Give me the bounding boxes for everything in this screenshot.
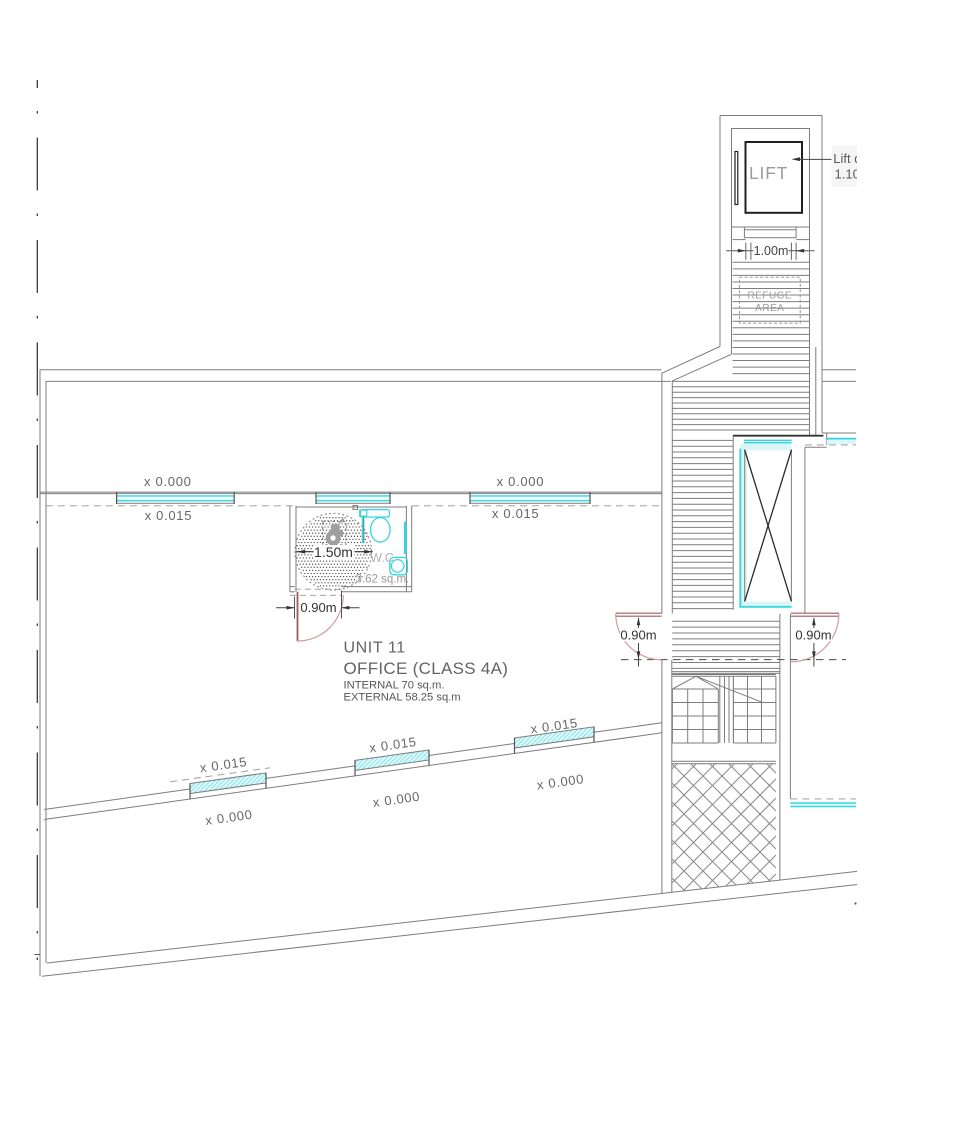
- svg-text:x 0.015: x 0.015: [492, 506, 540, 521]
- svg-text:0.90m: 0.90m: [300, 600, 336, 615]
- svg-text:1.50m: 1.50m: [314, 544, 353, 560]
- svg-text:x 0.015: x 0.015: [145, 508, 193, 523]
- svg-text:1.00m: 1.00m: [754, 244, 789, 258]
- svg-text:EXTERNAL 58.25 sq.m: EXTERNAL 58.25 sq.m: [344, 692, 461, 704]
- svg-text:AREA: AREA: [755, 303, 784, 314]
- svg-text:0.90m: 0.90m: [620, 627, 656, 642]
- svg-text:x 0.000: x 0.000: [497, 474, 545, 489]
- svg-text:LIFT: LIFT: [749, 163, 788, 183]
- svg-text:x 0.000: x 0.000: [144, 474, 192, 489]
- svg-text:W.C: W.C: [370, 551, 394, 565]
- svg-text:INTERNAL 70 sq.m.: INTERNAL 70 sq.m.: [344, 679, 445, 691]
- svg-text:0.90m: 0.90m: [795, 627, 831, 642]
- svg-text:OFFICE (CLASS 4A): OFFICE (CLASS 4A): [344, 659, 509, 678]
- svg-text:UNIT 11: UNIT 11: [344, 640, 406, 657]
- svg-text:REFUGE: REFUGE: [747, 290, 792, 301]
- svg-text:3.62 sq.m.: 3.62 sq.m.: [356, 574, 410, 586]
